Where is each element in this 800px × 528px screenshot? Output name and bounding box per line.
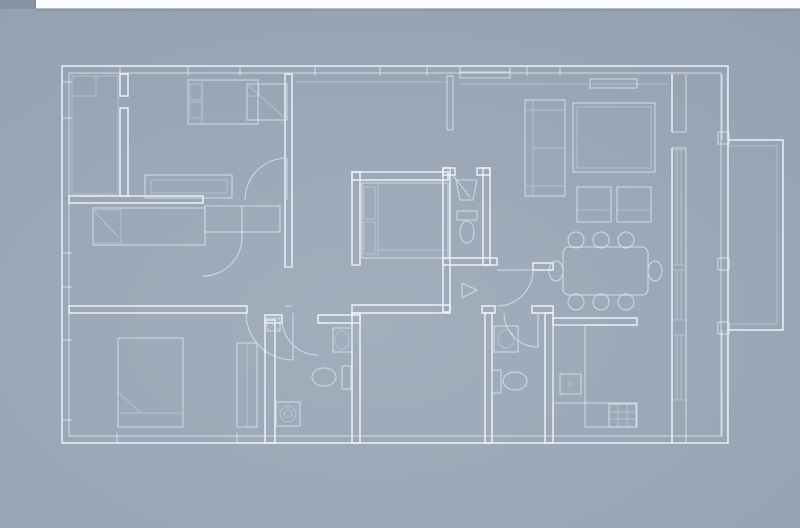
wall-vestibule-bottom-b xyxy=(532,306,553,313)
dresser-bedroom1 xyxy=(145,175,232,198)
bed-mid-left xyxy=(93,208,205,245)
balcony-bay-inner xyxy=(728,146,777,324)
wc-toilet-tank xyxy=(457,211,477,220)
kitchen-sink-drain xyxy=(568,382,572,386)
dining-chair-top-3 xyxy=(618,232,634,248)
armchair-a xyxy=(577,187,611,222)
dining-chair-top-2 xyxy=(593,232,609,248)
dining-table xyxy=(563,247,648,295)
bathroom2-wall-right xyxy=(545,313,553,443)
dresser-bedroom1-inner xyxy=(151,180,227,193)
armchair-b xyxy=(617,187,651,222)
sink-bathroom2-basin xyxy=(498,330,514,348)
toilet-bathroom1-bowl xyxy=(312,368,336,386)
bathroom1-wall-top-b xyxy=(318,315,360,323)
dining-chair-bottom-2 xyxy=(593,294,609,310)
kitchen-wall-top xyxy=(553,318,637,325)
washing-machine-drum xyxy=(280,406,296,422)
toilet-bathroom2-bowl xyxy=(503,372,527,390)
wc-wall-left xyxy=(443,168,450,258)
exterior-wall-inner xyxy=(69,73,721,436)
wall-stub-top-middle xyxy=(447,76,453,130)
toilet-bathroom1-tank xyxy=(342,366,351,389)
toilet-bathroom2-tank xyxy=(492,370,501,393)
closet-wall-lower xyxy=(120,108,128,196)
bathroom1-wall-right xyxy=(352,313,360,443)
wall-bedroom1-right xyxy=(285,74,292,267)
balcony-bay-outer xyxy=(728,140,783,330)
wall-middle-bedroom-bottom xyxy=(352,305,450,313)
bed-top-left-pillow-a xyxy=(190,84,202,100)
wc-toilet-bowl xyxy=(460,221,474,243)
entry-direction-arrow xyxy=(462,283,477,298)
bathroom1-wall-left xyxy=(265,320,275,443)
bathroom1-door-arc xyxy=(282,319,318,355)
wall-vestibule-bottom-a xyxy=(482,306,495,313)
wall-bedroom1-bottom xyxy=(69,196,203,203)
coffee-table-inner xyxy=(577,107,651,168)
floorplan-drawing xyxy=(0,0,800,528)
dining-chair-end-left xyxy=(549,261,563,281)
wc-corridor-wall xyxy=(443,258,450,312)
exterior-wall-outer xyxy=(62,66,728,443)
bathroom2-wall-left xyxy=(485,313,492,443)
bed-mid-left-fold xyxy=(95,212,119,238)
wall-hallway-right-upper xyxy=(352,172,360,265)
washing-machine-drum-inner xyxy=(284,410,292,418)
wall-middle-bedroom-top xyxy=(352,172,448,180)
kitchen-counter-bottom xyxy=(585,403,637,427)
bed-middle-pillow-a xyxy=(364,187,375,219)
wall-bedroom2-bottom xyxy=(69,306,247,313)
corner-closet-diagonal xyxy=(247,84,287,120)
bed-bottom-left xyxy=(118,338,183,427)
sink-bathroom1-basin xyxy=(335,331,349,349)
bed-middle-pillow-b xyxy=(364,222,375,254)
wc-door-leaf xyxy=(452,174,470,197)
wc-wall-bottom xyxy=(443,258,497,265)
dining-chair-bottom-1 xyxy=(568,294,584,310)
screenshot-root xyxy=(0,0,800,528)
stove xyxy=(609,404,636,427)
bed-top-left-pillow-b xyxy=(190,102,202,118)
closet-inner-outline xyxy=(72,76,118,194)
dining-chair-end-right xyxy=(648,261,662,281)
bathroom2-door-arc xyxy=(504,313,538,347)
coffee-table xyxy=(573,103,655,172)
kitchen-counter-left xyxy=(553,325,585,403)
entry-door-arc xyxy=(497,270,533,306)
dining-chair-bottom-3 xyxy=(618,294,634,310)
wc-wall-right xyxy=(483,168,490,265)
dining-chair-top-1 xyxy=(568,232,584,248)
closet-wall-upper xyxy=(120,74,128,96)
kitchen-sink xyxy=(560,374,581,394)
door-bedroom2-arc xyxy=(203,237,242,276)
door-bedroom1-arc xyxy=(245,158,287,200)
bed-bottom-left-fold xyxy=(118,392,141,413)
